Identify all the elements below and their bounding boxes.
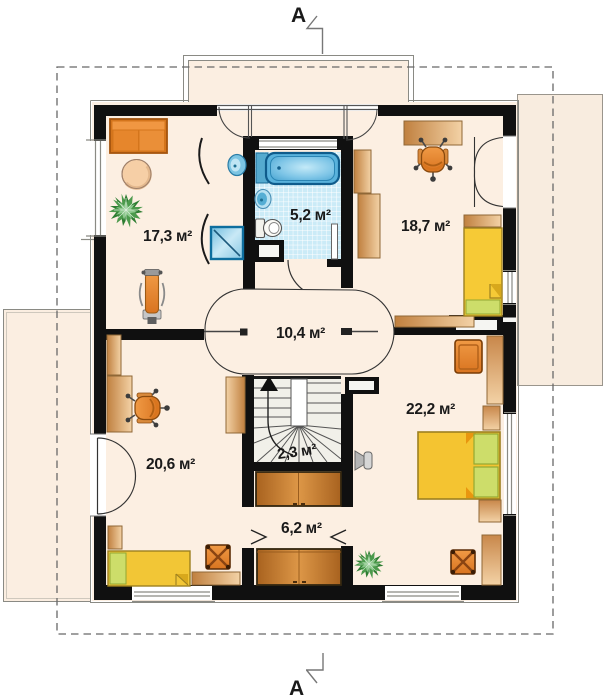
svg-text:18,7 м²: 18,7 м² bbox=[401, 218, 450, 235]
svg-text:17,3 м²: 17,3 м² bbox=[143, 228, 192, 245]
svg-text:A: A bbox=[291, 4, 306, 27]
svg-text:A: A bbox=[289, 677, 304, 700]
svg-text:5,2 м²: 5,2 м² bbox=[290, 207, 331, 224]
svg-text:10,4 м²: 10,4 м² bbox=[276, 325, 325, 342]
svg-text:20,6 м²: 20,6 м² bbox=[146, 456, 195, 473]
svg-text:22,2 м²: 22,2 м² bbox=[406, 401, 455, 418]
svg-text:6,2 м²: 6,2 м² bbox=[281, 520, 322, 537]
